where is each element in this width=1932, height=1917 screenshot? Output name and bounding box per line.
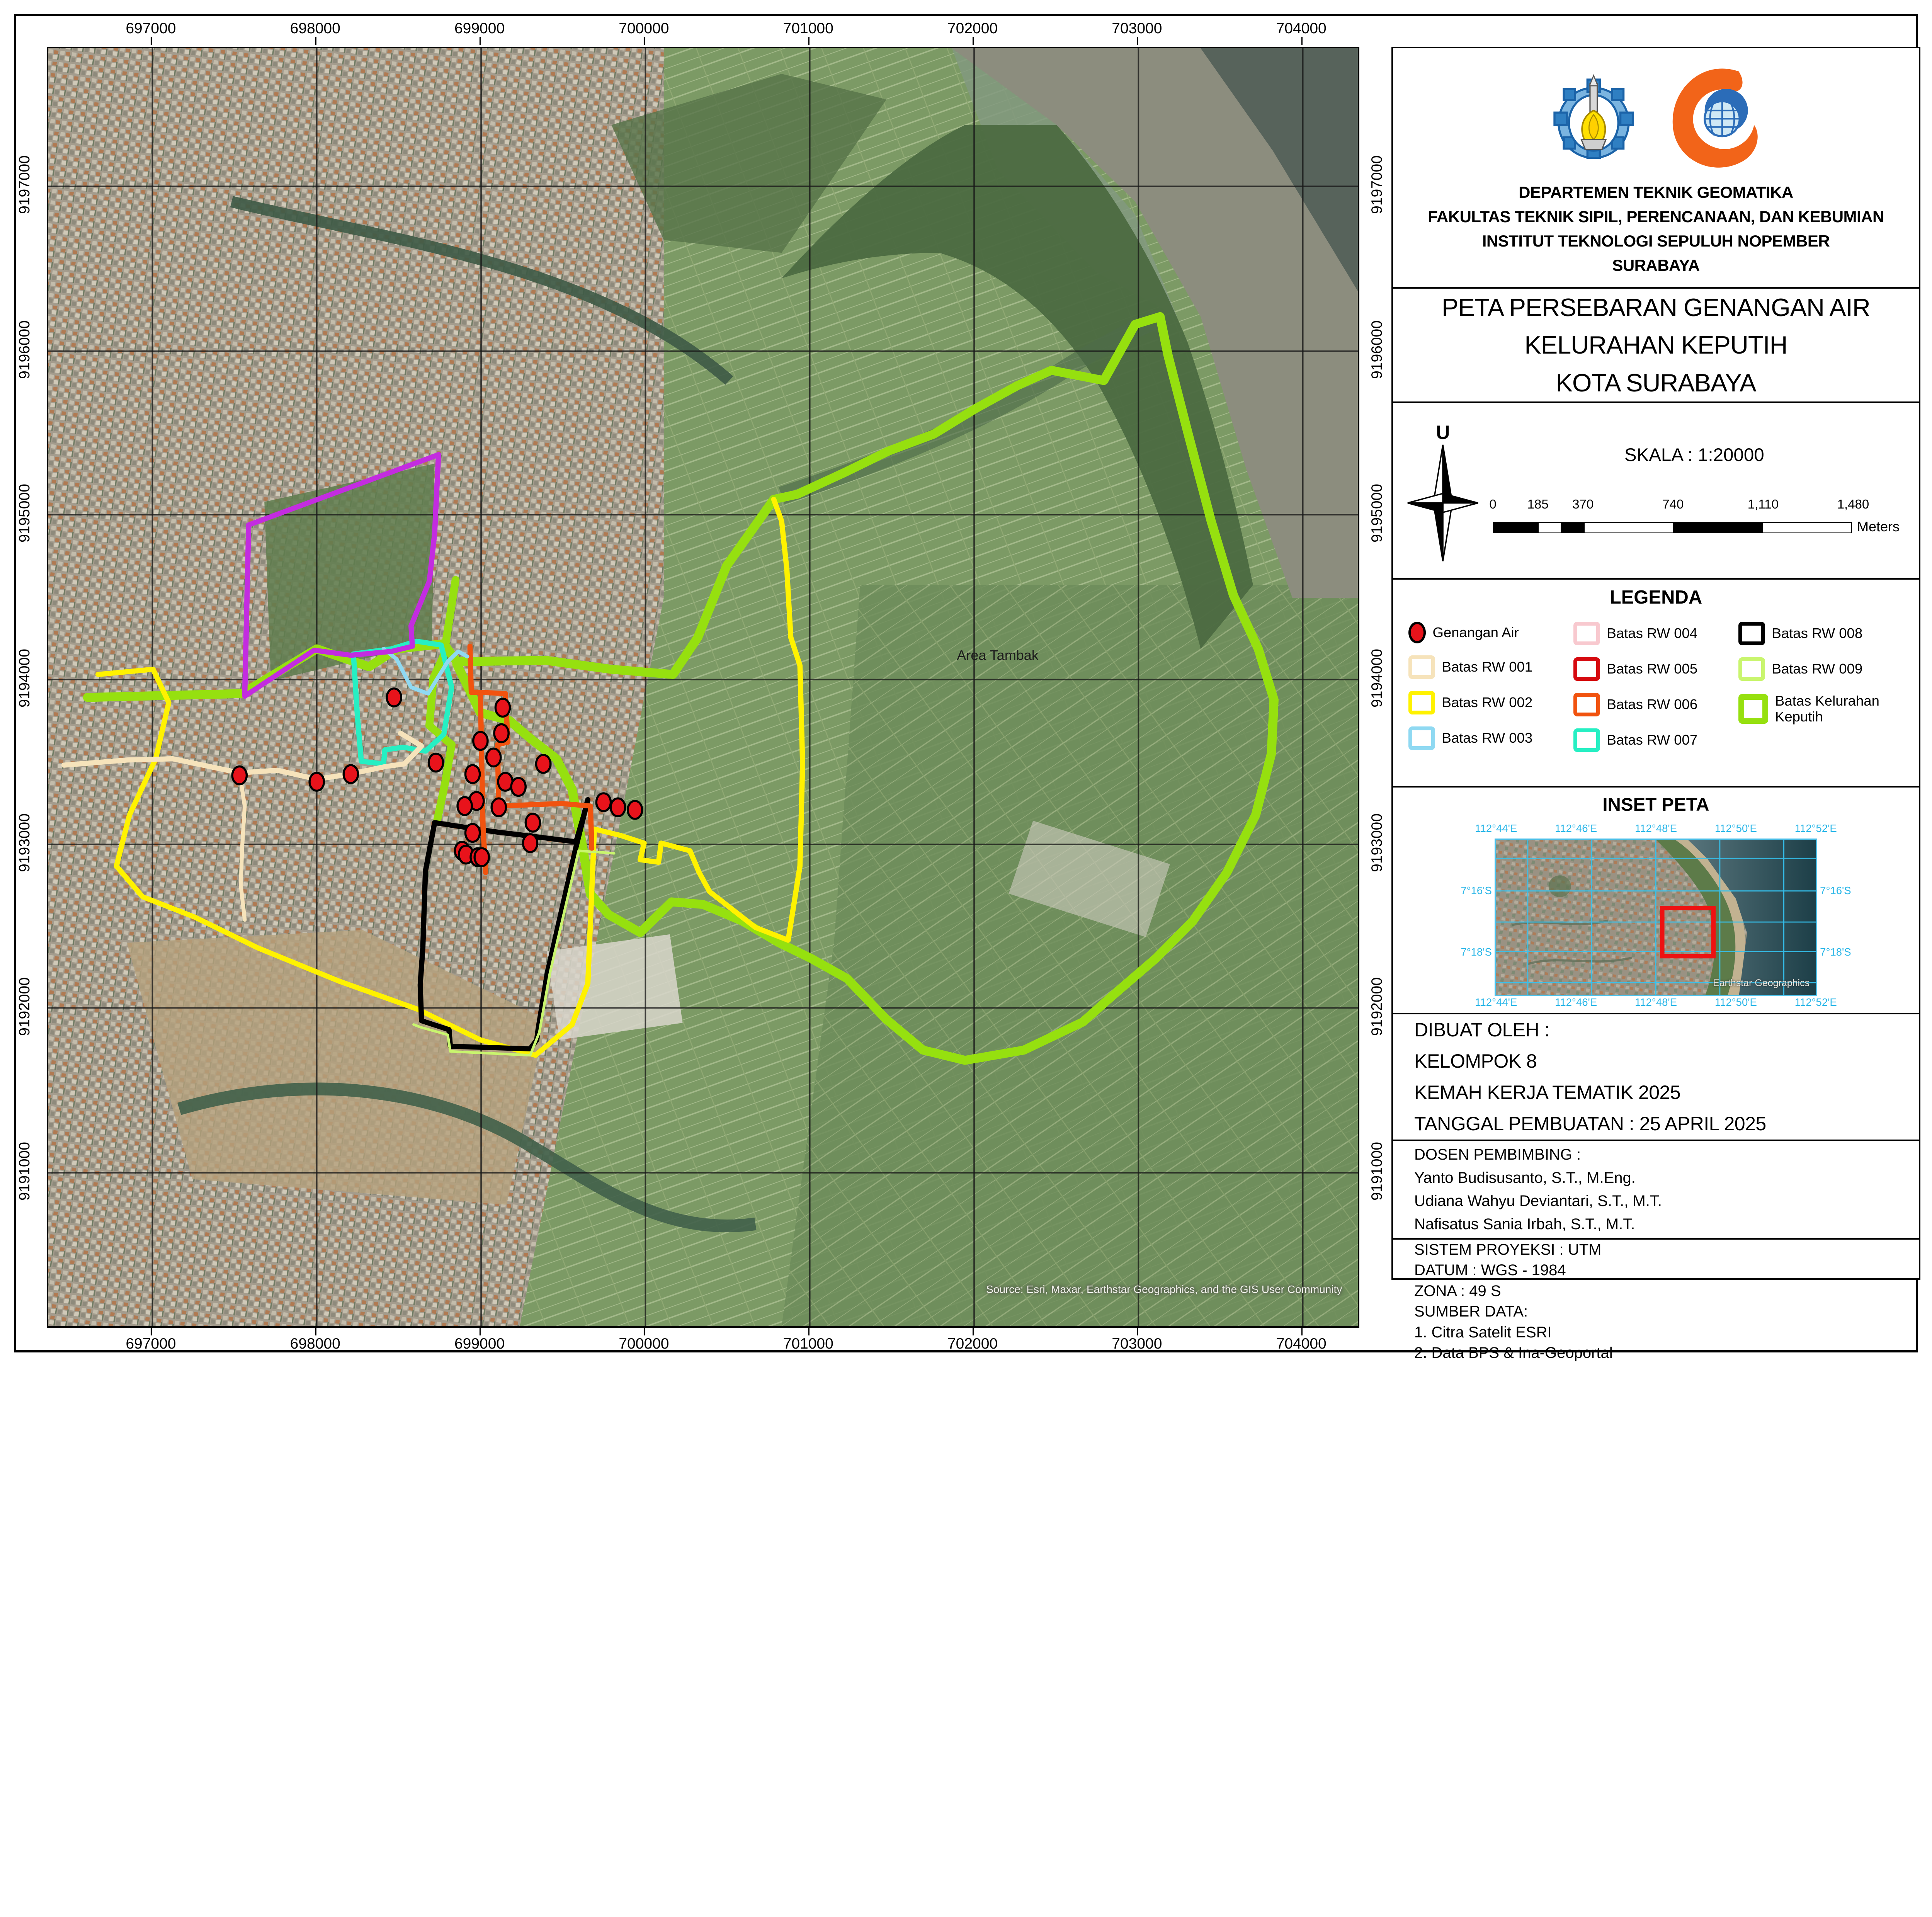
institution-lines: DEPARTEMEN TEKNIK GEOMATIKAFAKULTAS TEKN… xyxy=(1428,180,1884,277)
genangan-air-point xyxy=(344,765,358,783)
grid-coordinate-label: 704000 xyxy=(1276,1335,1327,1352)
grid-coordinate-label: 9196000 xyxy=(1369,320,1386,379)
legend-label: Batas RW 004 xyxy=(1607,625,1697,641)
map-canvas: Area Tambak Source: Esri, Maxar, Earthst… xyxy=(47,47,1359,1328)
grid-coordinate-label: 700000 xyxy=(619,1335,669,1352)
boundary-swatch xyxy=(1738,657,1765,681)
legend-label: Batas RW 006 xyxy=(1607,696,1697,713)
area-tambak-label: Area Tambak xyxy=(957,647,1038,663)
projection-line: 1. Citra Satelit ESRI xyxy=(1414,1322,1919,1343)
legend-item-batas-rw-002: Batas RW 002 xyxy=(1408,691,1573,714)
genangan-air-point xyxy=(492,798,506,816)
inset-lat-labels-left: 7°16'S7°18'S xyxy=(1456,839,1495,996)
made-by-line: KEMAH KERJA TEMATIK 2025 xyxy=(1414,1077,1919,1108)
inset-lat-label: 7°16'S xyxy=(1461,885,1492,897)
y-axis-labels-right: 9197000919600091950009194000919300091920… xyxy=(1358,47,1396,1325)
legend-label: Batas RW 007 xyxy=(1607,732,1697,748)
y-axis-labels-left: 9197000919600091950009194000919300091920… xyxy=(6,47,44,1325)
grid-coordinate-label: 9194000 xyxy=(1369,649,1386,708)
legend-item-batas-rw-001: Batas RW 001 xyxy=(1408,655,1573,679)
map-attribution: Source: Esri, Maxar, Earthstar Geographi… xyxy=(986,1283,1342,1296)
grid-coordinate-label: 9191000 xyxy=(1369,1142,1386,1201)
legend-item-genangan-air: Genangan Air xyxy=(1408,622,1573,643)
legend-label: Batas RW 009 xyxy=(1772,661,1862,677)
scale-bar-block: SKALA : 1:20000 01853707401,1101,480 Met… xyxy=(1493,403,1919,578)
grid-coordinate-label: 9192000 xyxy=(1369,977,1386,1036)
scale-bar xyxy=(1493,522,1852,532)
boundary-swatch xyxy=(1408,655,1435,679)
map-layout-sheet: 6970006980006990007000007010007020007030… xyxy=(0,0,1932,1366)
supervisor-line: Yanto Budisusanto, S.T., M.Eng. xyxy=(1414,1166,1919,1189)
grid-coordinate-label: 699000 xyxy=(454,1335,505,1352)
genangan-air-point xyxy=(526,814,540,832)
inset-lat-label: 7°16'S xyxy=(1820,885,1851,897)
inset-lon-labels-top: 112°44'E112°46'E112°48'E112°50'E112°52'E xyxy=(1456,822,1855,839)
genangan-air-point xyxy=(536,755,550,773)
grid-coordinate-label: 9195000 xyxy=(1369,484,1386,543)
grid-coordinate-label: 9192000 xyxy=(16,977,33,1036)
scale-bar-segment xyxy=(1493,522,1539,533)
grid-coordinate-label: 9196000 xyxy=(16,320,33,379)
made-by-line: TANGGAL PEMBUATAN : 25 APRIL 2025 xyxy=(1414,1108,1919,1140)
scale-bar-label: 370 xyxy=(1572,497,1594,512)
grid-coordinate-label: 9197000 xyxy=(1369,156,1386,214)
grid-coordinate-label: 704000 xyxy=(1276,20,1327,37)
institution-header: DEPARTEMEN TEKNIK GEOMATIKAFAKULTAS TEKN… xyxy=(1393,48,1919,287)
legend-label: Genangan Air xyxy=(1432,624,1519,641)
inset-lat-label: 7°18'S xyxy=(1820,946,1851,958)
genangan-air-point xyxy=(523,834,537,852)
legend-item-batas-rw-007: Batas RW 007 xyxy=(1573,728,1738,752)
legend-title: LEGENDA xyxy=(1408,587,1903,608)
inset-lon-label: 112°52'E xyxy=(1795,822,1837,835)
inset-lon-labels-bottom: 112°44'E112°46'E112°48'E112°50'E112°52'E xyxy=(1456,996,1855,1013)
institution-line: INSTITUT TEKNOLOGI SEPULUH NOPEMBER xyxy=(1428,229,1884,253)
scale-bar-segment xyxy=(1539,522,1561,533)
boundary-swatch xyxy=(1573,622,1600,645)
genangan-air-point xyxy=(495,699,510,716)
inset-lon-label: 112°44'E xyxy=(1475,996,1517,1009)
scale-section: U SKALA : 1:20000 01853707401,1101,480 xyxy=(1393,401,1919,578)
inset-map: Earthstar Geographics xyxy=(1495,839,1817,996)
compass-rose-icon xyxy=(1402,442,1483,564)
grid-coordinate-label: 9194000 xyxy=(16,649,33,708)
map-title-line: KELURAHAN KEPUTIH xyxy=(1393,326,1919,364)
boundary-swatch xyxy=(1738,694,1769,724)
boundary-swatch xyxy=(1738,622,1765,645)
inset-section: INSET PETA 112°44'E112°46'E112°48'E112°5… xyxy=(1393,786,1919,1013)
scale-bar-label: 1,110 xyxy=(1748,497,1779,512)
legend-label: Batas RW 003 xyxy=(1442,730,1532,746)
x-axis-labels-top: 6970006980006990007000007010007020007030… xyxy=(47,13,1356,45)
institution-line: DEPARTEMEN TEKNIK GEOMATIKA xyxy=(1428,180,1884,204)
legend-label: Batas Kelurahan Keputih xyxy=(1775,693,1903,725)
scale-text: SKALA : 1:20000 xyxy=(1493,444,1896,466)
scale-bar-segment xyxy=(1763,522,1852,533)
legend-items: Genangan AirBatas RW 001Batas RW 002Bata… xyxy=(1408,622,1903,752)
boundary-swatch xyxy=(1573,728,1600,752)
supervisor-line: Nafisatus Sania Irbah, S.T., M.T. xyxy=(1414,1213,1919,1236)
genangan-air-point xyxy=(429,754,443,772)
scale-bar-label: 185 xyxy=(1527,497,1549,512)
boundary-swatch xyxy=(1408,726,1435,750)
boundary-swatch xyxy=(1408,691,1435,714)
scale-bar-segment xyxy=(1674,522,1763,533)
legend-column: Batas RW 004Batas RW 005Batas RW 006Bata… xyxy=(1573,622,1738,752)
legend-item-batas-rw-004: Batas RW 004 xyxy=(1573,622,1738,645)
boundary-swatch xyxy=(1573,657,1600,681)
grid-coordinate-label: 9193000 xyxy=(16,814,33,873)
grid-coordinate-label: 697000 xyxy=(126,20,176,37)
inset-lon-label: 112°52'E xyxy=(1795,996,1837,1009)
genangan-air-point xyxy=(596,793,611,811)
grid-coordinate-label: 700000 xyxy=(619,20,669,37)
genangan-air-point xyxy=(486,748,501,766)
satellite-map xyxy=(48,48,1358,1326)
institution-line: SURABAYA xyxy=(1428,253,1884,277)
scale-bar-wrap: 01853707401,1101,480 Meters xyxy=(1493,497,1896,535)
genangan-air-point xyxy=(474,848,489,866)
inset-lon-label: 112°44'E xyxy=(1475,822,1517,835)
logo-row xyxy=(1542,67,1769,170)
legend-column: Batas RW 008Batas RW 009Batas Kelurahan … xyxy=(1738,622,1903,752)
projection-line: DATUM : WGS - 1984 xyxy=(1414,1260,1919,1281)
grid-coordinate-label: 9193000 xyxy=(1369,814,1386,873)
projection-line: ZONA : 49 S xyxy=(1414,1281,1919,1302)
x-axis-labels-bottom: 6970006980006990007000007010007020007030… xyxy=(47,1327,1356,1359)
grid-coordinate-label: 697000 xyxy=(126,1335,176,1352)
genangan-air-point xyxy=(473,732,488,750)
north-label: U xyxy=(1436,423,1450,442)
inset-lon-label: 112°48'E xyxy=(1635,996,1677,1009)
projection-line: SISTEM PROYEKSI : UTM xyxy=(1414,1240,1919,1260)
legend-item-batas-rw-005: Batas RW 005 xyxy=(1573,657,1738,681)
scale-bar-segment xyxy=(1561,522,1584,533)
institution-line: FAKULTAS TEKNIK SIPIL, PERENCANAAN, DAN … xyxy=(1428,204,1884,229)
legend-column: Genangan AirBatas RW 001Batas RW 002Bata… xyxy=(1408,622,1573,752)
grid-coordinate-label: 9195000 xyxy=(16,484,33,543)
inset-lat-label: 7°18'S xyxy=(1461,946,1492,958)
grid-coordinate-label: 702000 xyxy=(947,1335,998,1352)
projection-line: 3. Geotagging Genangan Air xyxy=(1414,1364,1919,1366)
grid-coordinate-label: 702000 xyxy=(947,20,998,37)
inset-title: INSET PETA xyxy=(1602,794,1709,815)
made-by-line: KELOMPOK 8 xyxy=(1414,1046,1919,1077)
scale-bar-label: 740 xyxy=(1662,497,1684,512)
legend-label: Batas RW 001 xyxy=(1442,659,1532,675)
inset-wrap: 112°44'E112°46'E112°48'E112°50'E112°52'E… xyxy=(1456,822,1855,1013)
grid-coordinate-label: 9197000 xyxy=(16,156,33,214)
grid-coordinate-label: 701000 xyxy=(783,1335,833,1352)
scale-unit: Meters xyxy=(1857,519,1896,535)
grid-coordinate-label: 698000 xyxy=(290,20,340,37)
inset-lat-labels-right: 7°16'S7°18'S xyxy=(1817,839,1856,996)
map-title-line: KOTA SURABAYA xyxy=(1393,364,1919,402)
inset-watermark: Earthstar Geographics xyxy=(1713,978,1810,989)
legend-item-batas-rw-008: Batas RW 008 xyxy=(1738,622,1903,645)
legend-item-batas-rw-006: Batas RW 006 xyxy=(1573,693,1738,716)
grid-coordinate-label: 699000 xyxy=(454,20,505,37)
made-by-section: DIBUAT OLEH :KELOMPOK 8KEMAH KERJA TEMAT… xyxy=(1393,1013,1919,1140)
legend-item-batas-kelurahan-keputih: Batas Kelurahan Keputih xyxy=(1738,693,1903,725)
info-panel: DEPARTEMEN TEKNIK GEOMATIKAFAKULTAS TEKN… xyxy=(1391,47,1920,1279)
made-by-line: DIBUAT OLEH : xyxy=(1414,1014,1919,1046)
genangan-air-point xyxy=(511,778,526,796)
its-logo-icon xyxy=(1542,67,1645,170)
geomatika-logo-icon xyxy=(1667,67,1770,170)
scale-bar-labels: 01853707401,1101,480 xyxy=(1493,497,1853,516)
boundary-swatch xyxy=(1573,693,1600,716)
legend-item-batas-rw-009: Batas RW 009 xyxy=(1738,657,1903,681)
inset-lon-label: 112°50'E xyxy=(1715,822,1757,835)
map-title-line: PETA PERSEBARAN GENANGAN AIR xyxy=(1393,289,1919,327)
genangan-air-point xyxy=(611,798,625,816)
grid-coordinate-label: 9191000 xyxy=(16,1142,33,1201)
grid-coordinate-label: 701000 xyxy=(783,20,833,37)
genangan-air-point xyxy=(457,797,472,815)
supervisors-section: DOSEN PEMBIMBING :Yanto Budisusanto, S.T… xyxy=(1393,1140,1919,1238)
supervisor-line: Udiana Wahyu Deviantari, S.T., M.T. xyxy=(1414,1189,1919,1213)
supervisor-line: DOSEN PEMBIMBING : xyxy=(1414,1143,1919,1166)
scale-bar-label: 1,480 xyxy=(1837,497,1869,512)
inset-lon-label: 112°48'E xyxy=(1635,822,1677,835)
grid-coordinate-label: 703000 xyxy=(1112,1335,1162,1352)
legend-label: Batas RW 005 xyxy=(1607,661,1697,677)
inset-map-image xyxy=(1496,840,1816,995)
projection-section: SISTEM PROYEKSI : UTMDATUM : WGS - 1984Z… xyxy=(1393,1238,1919,1366)
genangan-air-point xyxy=(232,767,247,784)
genangan-air-point xyxy=(387,689,401,706)
inset-lon-label: 112°50'E xyxy=(1715,996,1757,1009)
projection-line: 2. Data BPS & Ina-Geoportal xyxy=(1414,1343,1919,1364)
genangan-air-point xyxy=(465,765,480,783)
grid-coordinate-label: 703000 xyxy=(1112,20,1162,37)
scale-bar-label: 0 xyxy=(1489,497,1496,512)
north-arrow: U xyxy=(1393,403,1493,578)
inset-lon-label: 112°46'E xyxy=(1555,822,1597,835)
legend-label: Batas RW 002 xyxy=(1442,694,1532,711)
legend-item-batas-rw-003: Batas RW 003 xyxy=(1408,726,1573,750)
grid-coordinate-label: 698000 xyxy=(290,1335,340,1352)
projection-line: SUMBER DATA: xyxy=(1414,1301,1919,1322)
genangan-air-point xyxy=(628,801,642,819)
scale-bar-segment xyxy=(1585,522,1674,533)
genangan-air-point xyxy=(465,824,480,842)
inset-lon-label: 112°46'E xyxy=(1555,996,1597,1009)
legend-section: LEGENDA Genangan AirBatas RW 001Batas RW… xyxy=(1393,578,1919,786)
genangan-air-point xyxy=(310,773,324,791)
map-title: PETA PERSEBARAN GENANGAN AIRKELURAHAN KE… xyxy=(1393,287,1919,402)
genangan-air-point xyxy=(494,725,509,742)
genangan-air-swatch xyxy=(1408,622,1426,643)
legend-label: Batas RW 008 xyxy=(1772,625,1862,641)
